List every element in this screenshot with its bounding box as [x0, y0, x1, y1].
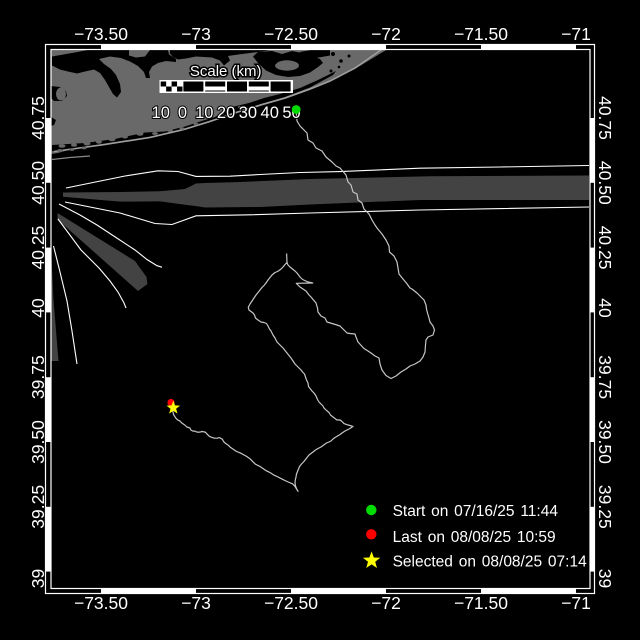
svg-text:−71: −71	[561, 24, 591, 44]
svg-text:39.25: 39.25	[28, 485, 48, 529]
svg-text:−72.50: −72.50	[264, 24, 318, 44]
svg-text:−73.50: −73.50	[74, 24, 128, 44]
svg-text:39.25: 39.25	[595, 485, 615, 529]
svg-text:40.50: 40.50	[595, 161, 615, 205]
svg-text:39.75: 39.75	[595, 355, 615, 399]
svg-text:40: 40	[261, 104, 279, 122]
svg-text:40: 40	[28, 298, 48, 318]
svg-text:−72: −72	[371, 24, 401, 44]
svg-text:−73: −73	[181, 593, 211, 613]
svg-text:Last on 08/08/25 10:59: Last on 08/08/25 10:59	[393, 529, 556, 546]
svg-text:Scale (km): Scale (km)	[190, 63, 262, 80]
svg-text:10: 10	[195, 104, 213, 122]
svg-text:−71: −71	[561, 593, 591, 613]
svg-text:40: 40	[595, 298, 615, 318]
svg-text:Start on 07/16/25 11:44: Start on 07/16/25 11:44	[393, 503, 559, 520]
svg-text:39: 39	[595, 569, 615, 588]
svg-text:39.75: 39.75	[28, 355, 48, 399]
svg-text:−72.50: −72.50	[264, 593, 318, 613]
svg-text:40.75: 40.75	[28, 96, 48, 140]
svg-text:30: 30	[239, 104, 257, 122]
svg-text:40.25: 40.25	[595, 226, 615, 270]
svg-text:10: 10	[152, 104, 170, 122]
svg-text:40.25: 40.25	[28, 226, 48, 270]
svg-text:0: 0	[178, 104, 187, 122]
svg-text:39.50: 39.50	[595, 420, 615, 464]
svg-text:40.50: 40.50	[28, 161, 48, 205]
svg-text:40.75: 40.75	[595, 96, 615, 140]
svg-text:−71.50: −71.50	[454, 593, 508, 613]
svg-text:20: 20	[217, 104, 235, 122]
svg-text:39.50: 39.50	[28, 420, 48, 464]
svg-text:39: 39	[28, 569, 48, 588]
svg-text:−73.50: −73.50	[74, 593, 128, 613]
svg-text:Selected on 08/08/25 07:14: Selected on 08/08/25 07:14	[393, 554, 587, 571]
svg-text:−71.50: −71.50	[454, 24, 508, 44]
svg-text:−72: −72	[371, 593, 401, 613]
svg-text:−73: −73	[181, 24, 211, 44]
